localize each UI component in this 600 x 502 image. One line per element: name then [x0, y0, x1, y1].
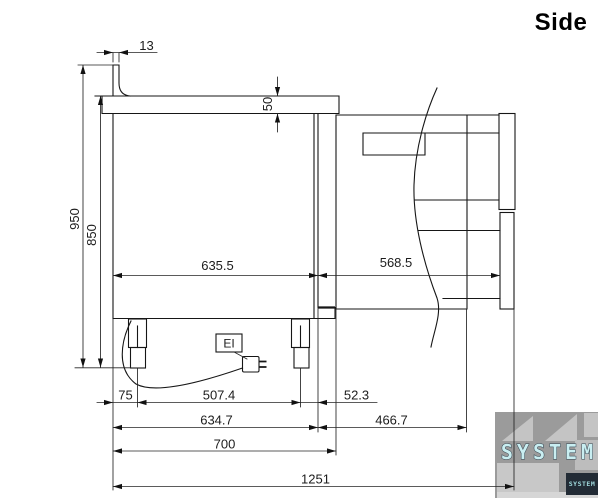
view-title: Side	[535, 9, 588, 36]
back-panel-upper	[499, 114, 515, 210]
break-line	[414, 88, 439, 347]
worktop-outline	[95, 96, 339, 114]
back-panel-lower	[500, 213, 514, 310]
dim-counter-depth-top: 635.5	[201, 258, 234, 273]
watermark-badge-text: SYSTEM	[569, 480, 595, 488]
rear-unit-handle	[363, 133, 425, 155]
watermark-block	[584, 413, 598, 437]
dim-base-depth: 700	[214, 437, 236, 452]
dim-front-to-leg: 75	[118, 388, 132, 403]
dim-overall-height: 950	[67, 208, 82, 230]
dim-backsplash-width: 13	[139, 38, 153, 53]
power-cable	[122, 321, 242, 388]
dim-counter-depth-base: 634.7	[200, 413, 233, 428]
dim-rear-extension: 466.7	[375, 413, 408, 428]
body-outline	[113, 114, 335, 319]
right-leg	[292, 319, 310, 368]
watermark-block	[497, 463, 559, 495]
technical-drawing-side-view: SYSTEM SYSTEM	[0, 0, 600, 502]
electrical-callout	[122, 321, 266, 388]
plug-prongs	[260, 362, 267, 368]
backsplash-outline	[113, 65, 130, 96]
rear-unit-outline	[336, 115, 499, 309]
dim-overall-depth: 1251	[301, 472, 330, 487]
rear-unit-inner-lines	[415, 133, 500, 299]
watermark: SYSTEM SYSTEM	[495, 412, 598, 498]
ei-leader-line	[234, 352, 247, 359]
dim-leg-to-back: 52.3	[344, 388, 369, 403]
counter-structure	[95, 65, 515, 388]
plug-icon	[243, 357, 260, 373]
watermark-logo-text: SYSTEM	[501, 440, 597, 464]
dim-rear-unit-depth: 568.5	[380, 255, 413, 270]
left-leg	[129, 319, 147, 368]
dim-worktop-height: 850	[84, 224, 99, 246]
dim-leg-spacing: 507.4	[203, 388, 236, 403]
dimension-lines	[75, 50, 514, 490]
drawing-page: SYSTEM SYSTEM	[0, 0, 600, 502]
electrical-connection-label: EI	[223, 337, 234, 351]
dim-worktop-thickness: 50	[260, 97, 275, 111]
